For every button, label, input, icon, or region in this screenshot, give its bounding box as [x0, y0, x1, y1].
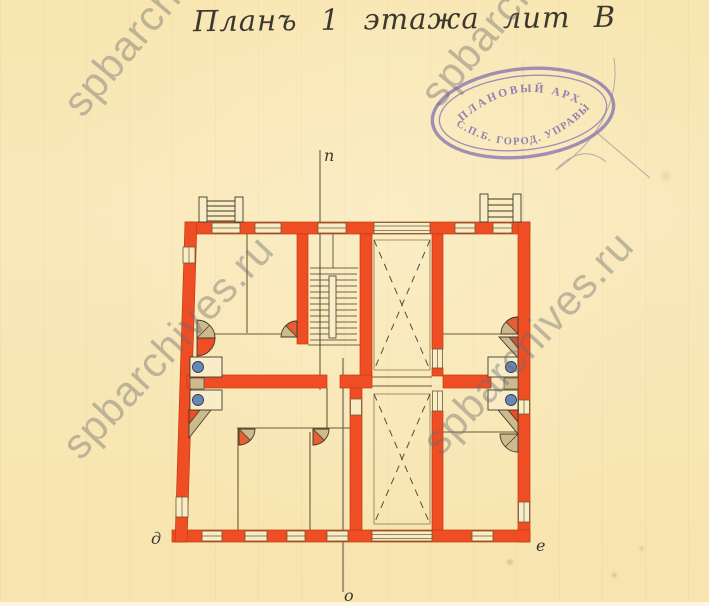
floor-plan-drawing: п о д е ПЛАНОВЫЙ АРХ. С.П.Б. ГОРОД. УПРА… [0, 0, 709, 606]
courtyard-bottom [374, 394, 430, 524]
label-corner-left: д [151, 529, 161, 548]
label-corner-right: е [536, 536, 545, 555]
staircase [308, 234, 360, 345]
entry-steps-right [480, 194, 521, 222]
wall-right [518, 222, 530, 542]
section-line [320, 150, 343, 592]
label-section-bottom: о [344, 586, 354, 605]
label-section-top: п [324, 146, 334, 165]
courtyard-top [374, 240, 430, 370]
interior-walls [187, 234, 491, 530]
scanned-plan-page: Планъ 1 этажа лит В [0, 0, 709, 606]
entry-steps-left [199, 197, 243, 222]
